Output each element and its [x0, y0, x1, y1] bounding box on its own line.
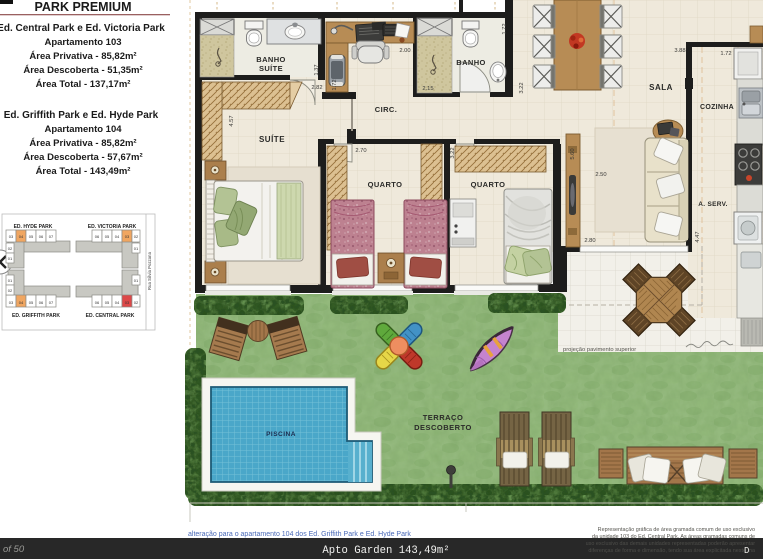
svg-text:06: 06 [39, 300, 44, 305]
svg-text:D: D [744, 546, 749, 556]
svg-text:Ed. Griffith Park e Ed. Hyde P: Ed. Griffith Park e Ed. Hyde Park [4, 110, 159, 121]
svg-text:diferenças de forma e dimensão: diferenças de forma e dimensão, tendo su… [588, 548, 755, 554]
svg-text:07: 07 [49, 300, 54, 305]
svg-text:ED. CENTRAL PARK: ED. CENTRAL PARK [86, 313, 135, 319]
svg-text:3.88: 3.88 [674, 48, 685, 54]
svg-text:4.57: 4.57 [229, 115, 235, 126]
svg-text:1.37: 1.37 [314, 64, 320, 75]
svg-text:Rua Silvia Pozzana: Rua Silvia Pozzana [147, 251, 152, 290]
svg-text:uso exclusivo das demais unida: uso exclusivo das demais unidades repres… [586, 541, 756, 547]
svg-text:Área Descoberta - 51,35m²: Área Descoberta - 51,35m² [23, 65, 142, 76]
svg-text:Área Privativa - 85,82m²: Área Privativa - 85,82m² [29, 138, 136, 149]
svg-text:1.72: 1.72 [720, 51, 731, 57]
svg-text:05: 05 [105, 300, 110, 305]
svg-text:Apartamento 103: Apartamento 103 [44, 37, 121, 48]
svg-text:QUARTO: QUARTO [368, 180, 403, 189]
svg-text:07: 07 [49, 234, 54, 239]
svg-text:ED. HYDE PARK: ED. HYDE PARK [14, 224, 53, 230]
svg-text:2.50: 2.50 [595, 172, 606, 178]
svg-text:01: 01 [134, 246, 139, 251]
svg-text:01: 01 [134, 278, 139, 283]
svg-text:Área Descoberta - 57,67m²: Área Descoberta - 57,67m² [23, 152, 142, 163]
svg-text:03: 03 [125, 300, 130, 305]
svg-text:2.70: 2.70 [355, 148, 366, 154]
svg-text:03: 03 [9, 234, 14, 239]
svg-text:alteração para o apartamento 1: alteração para o apartamento 104 dos Ed.… [188, 531, 411, 538]
svg-text:02: 02 [134, 234, 139, 239]
svg-text:04: 04 [115, 300, 120, 305]
svg-text:of 50: of 50 [3, 544, 25, 555]
svg-text:Ed. Central Park e Ed. Victori: Ed. Central Park e Ed. Victoria Park [0, 23, 165, 34]
svg-text:02: 02 [134, 300, 139, 305]
svg-text:03: 03 [125, 234, 130, 239]
svg-text:COZINHA: COZINHA [700, 104, 734, 111]
svg-text:QUARTO: QUARTO [471, 180, 506, 189]
svg-text:2.15: 2.15 [422, 86, 433, 92]
svg-text:ED. GRIFFITH PARK: ED. GRIFFITH PARK [12, 313, 60, 319]
svg-text:Área Total - 143,49m²: Área Total - 143,49m² [36, 166, 131, 177]
svg-text:05: 05 [29, 234, 34, 239]
svg-text:A. SERV.: A. SERV. [698, 201, 728, 208]
svg-text:06: 06 [95, 300, 100, 305]
svg-text:2.80: 2.80 [584, 238, 595, 244]
svg-text:04: 04 [115, 234, 120, 239]
svg-text:CIRC.: CIRC. [375, 105, 397, 114]
svg-text:01: 01 [8, 278, 13, 283]
svg-text:ED. VICTORIA PARK: ED. VICTORIA PARK [88, 224, 137, 230]
svg-text:Representação gráfica de área: Representação gráfica de área gramada co… [598, 527, 755, 533]
svg-text:PARK PREMIUM: PARK PREMIUM [35, 0, 132, 14]
svg-text:1.72: 1.72 [502, 23, 508, 34]
svg-text:04: 04 [19, 234, 24, 239]
svg-text:2.00: 2.00 [399, 48, 410, 54]
svg-text:SUÍTE: SUÍTE [259, 135, 285, 144]
svg-text:02: 02 [8, 288, 13, 293]
svg-text:Apartamento 104: Apartamento 104 [44, 124, 122, 135]
svg-text:06: 06 [39, 234, 44, 239]
svg-text:DESCOBERTO: DESCOBERTO [414, 423, 472, 432]
svg-text:Área Privativa - 85,82m²: Área Privativa - 85,82m² [29, 51, 136, 62]
svg-text:4.47: 4.47 [695, 231, 701, 242]
svg-text:3.22: 3.22 [519, 82, 525, 93]
svg-text:BANHO: BANHO [256, 55, 286, 64]
svg-text:TERRAÇO: TERRAÇO [423, 413, 464, 422]
svg-text:05: 05 [105, 234, 110, 239]
svg-text:5.60: 5.60 [570, 148, 576, 159]
svg-text:Apto Garden 143,49m²: Apto Garden 143,49m² [322, 545, 449, 557]
svg-text:05: 05 [29, 300, 34, 305]
svg-text:2.82: 2.82 [311, 85, 322, 91]
svg-text:SUÍTE: SUÍTE [259, 64, 283, 73]
svg-text:Área Total - 137,17m²: Área Total - 137,17m² [36, 79, 131, 90]
svg-text:04: 04 [19, 300, 24, 305]
svg-text:01: 01 [8, 256, 13, 261]
svg-text:PISCINA: PISCINA [266, 431, 296, 438]
svg-text:03: 03 [9, 300, 14, 305]
svg-text:3.22: 3.22 [450, 147, 456, 158]
svg-text:BANHO: BANHO [456, 58, 486, 67]
svg-text:02: 02 [8, 246, 13, 251]
svg-text:projeção pavimento superior: projeção pavimento superior [563, 347, 636, 353]
svg-text:06: 06 [95, 234, 100, 239]
svg-text:1.72: 1.72 [332, 79, 338, 90]
svg-text:SALA: SALA [649, 83, 673, 92]
